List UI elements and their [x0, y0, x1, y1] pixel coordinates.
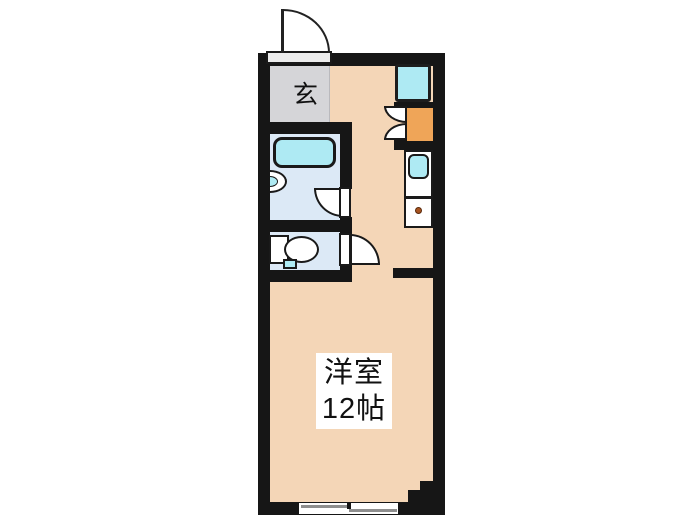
refrigerator-space-icon [407, 108, 433, 141]
wall-entrance-bottom [258, 122, 352, 134]
window-pane-right [349, 509, 397, 513]
stove-burner-icon [415, 207, 422, 214]
entrance-label: 玄 [293, 83, 318, 108]
wall-kitchen-stub-3 [393, 268, 445, 278]
wall-right [433, 53, 445, 515]
bathtub-icon [273, 137, 336, 168]
room-size: 12帖 [322, 391, 386, 427]
room-name: 洋室 [324, 355, 384, 391]
wall-bathroom-right-upper [340, 122, 352, 189]
wall-bathroom-bottom [258, 220, 352, 232]
window-center-tick [347, 502, 351, 509]
floor-plan: 玄 洋室 12帖 [0, 0, 700, 525]
kitchen-sink-icon [408, 154, 429, 179]
wall-kitchen-stub-2 [394, 140, 445, 150]
window-pane-left [301, 505, 350, 509]
toilet-door-panel [339, 233, 351, 266]
bathroom-door-panel [339, 187, 351, 218]
structural-pillar-step [408, 490, 445, 515]
wall-toilet-bottom [258, 270, 352, 282]
room-label: 洋室 12帖 [316, 353, 392, 429]
entrance-door-swing-icon [283, 9, 330, 53]
toilet-seat-accent [283, 259, 297, 269]
counter-divider [405, 196, 432, 199]
washer-space-icon [395, 64, 431, 102]
